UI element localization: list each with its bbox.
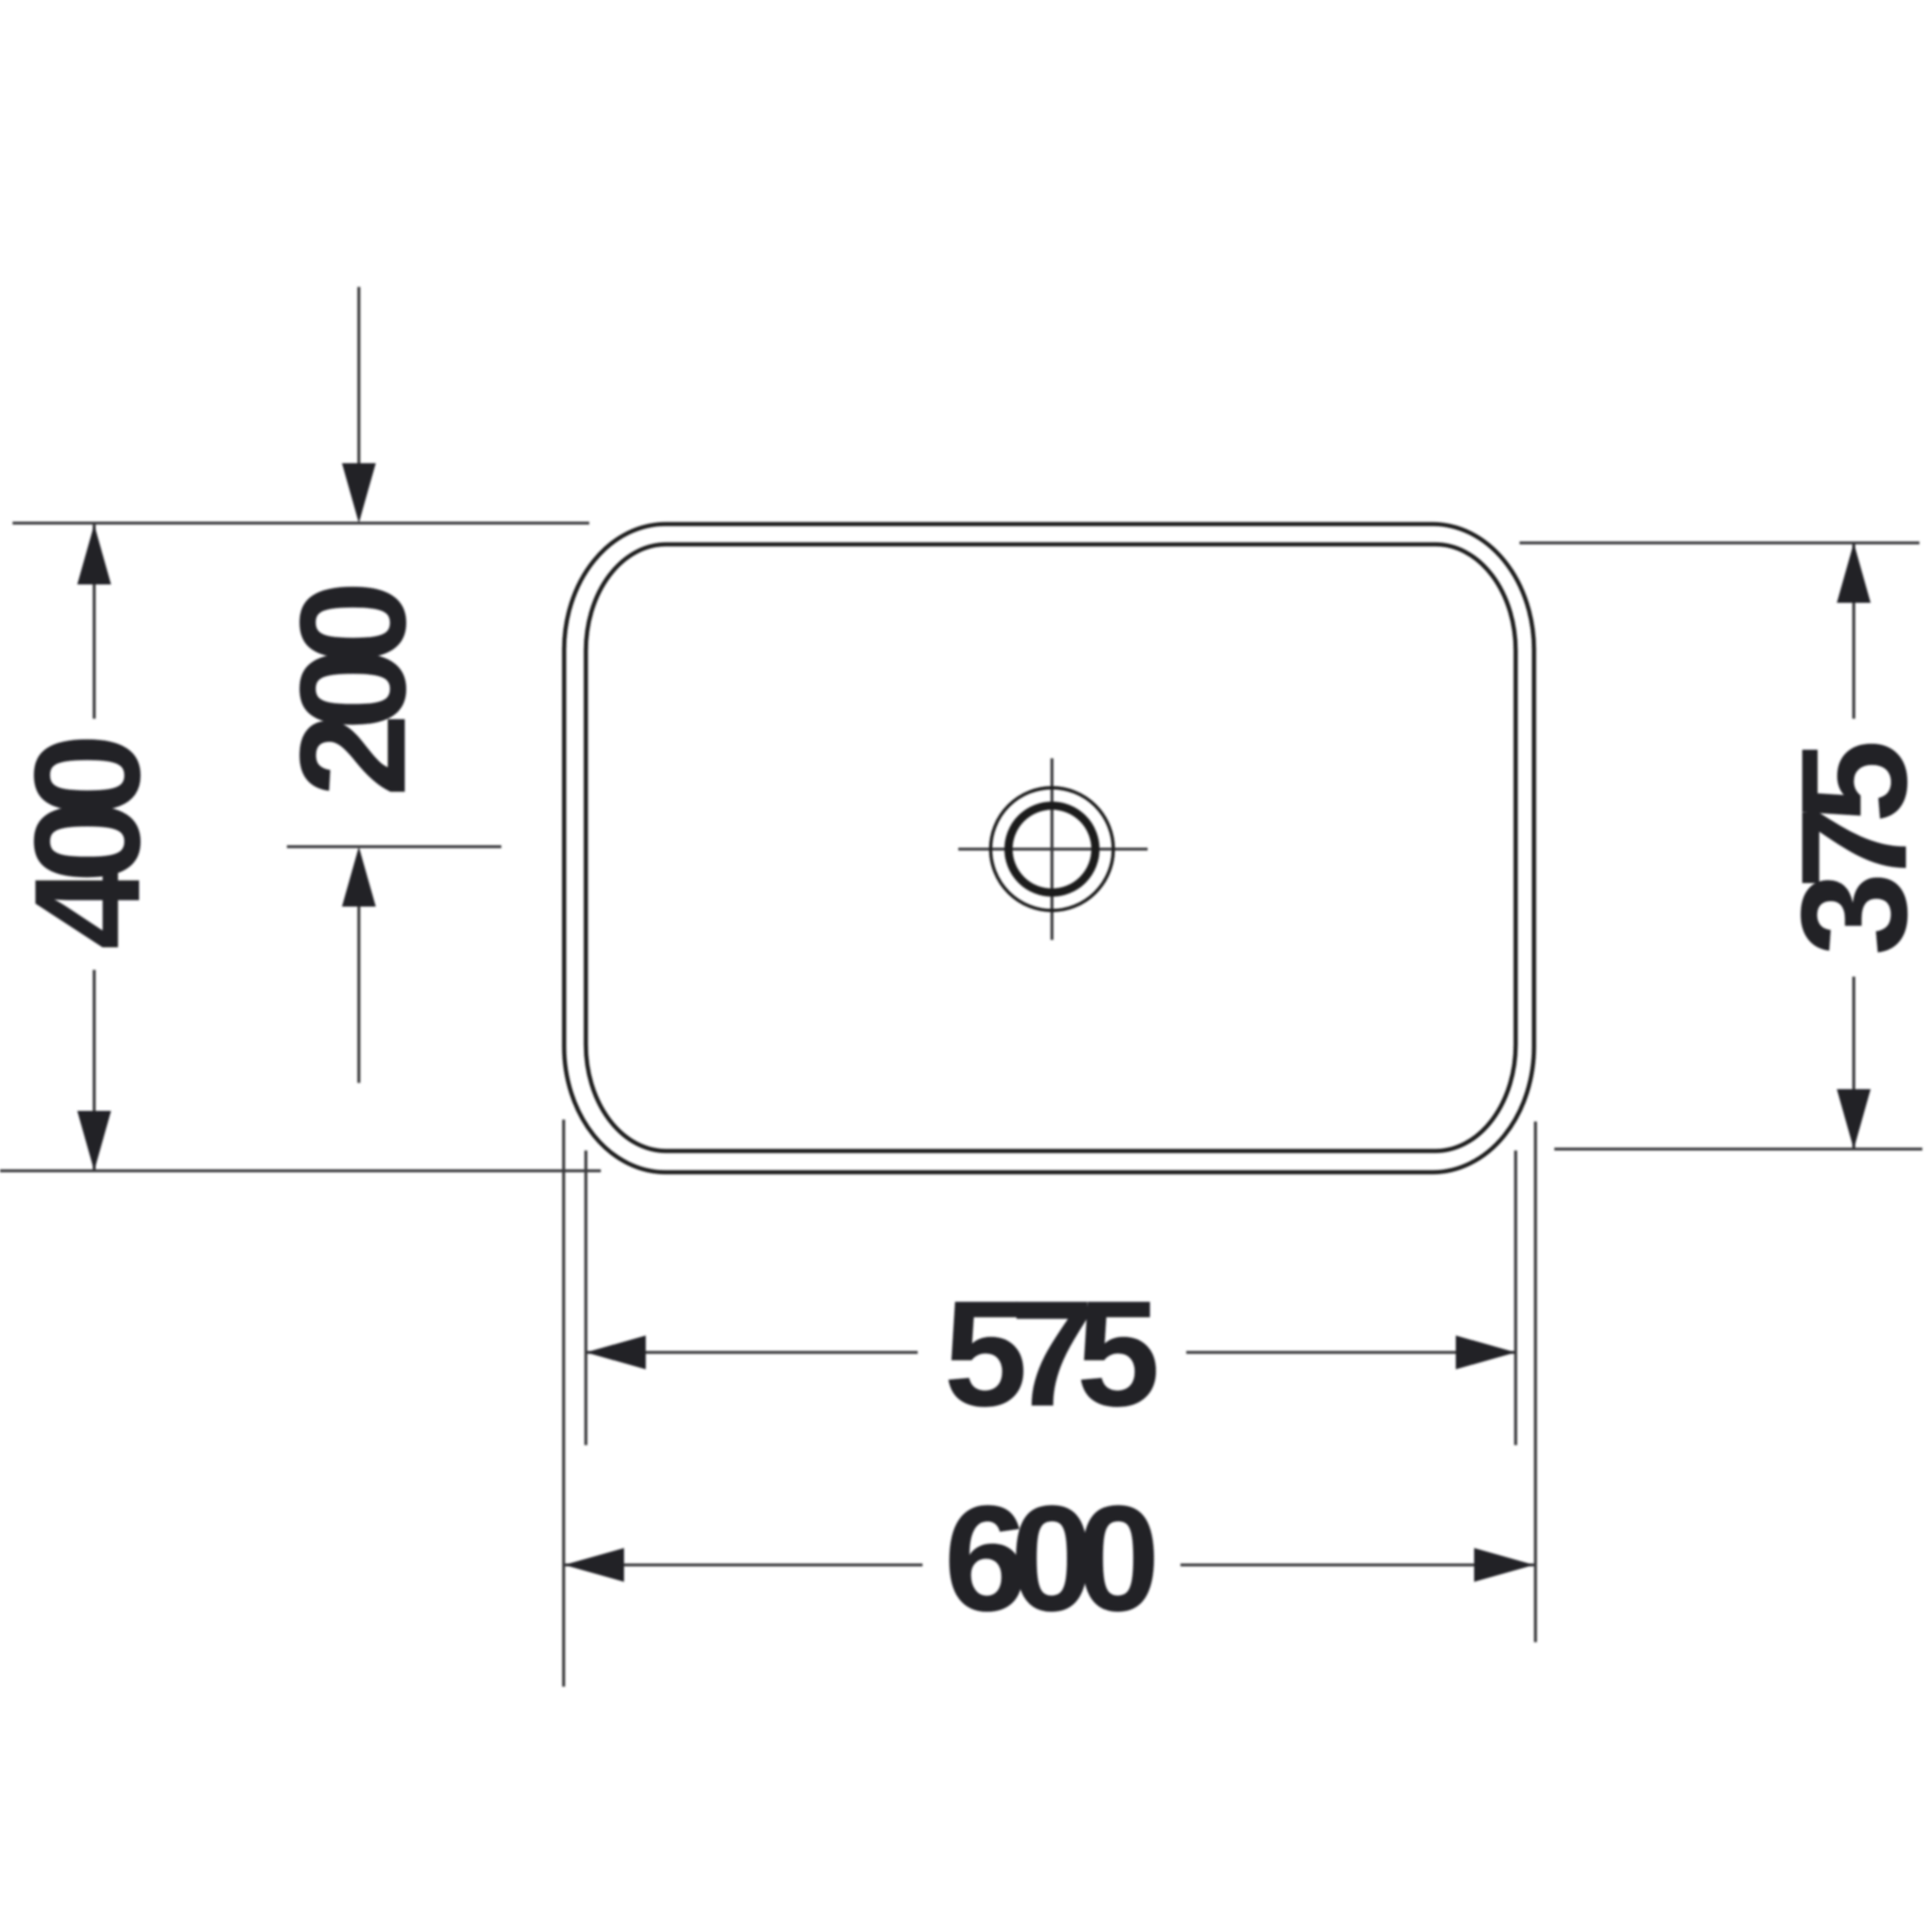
svg-text:600: 600 [944,1475,1168,1643]
svg-text:575: 575 [944,1270,1168,1438]
svg-text:400: 400 [4,725,172,950]
svg-text:375: 375 [1771,732,1932,956]
svg-text:200: 200 [270,573,438,797]
